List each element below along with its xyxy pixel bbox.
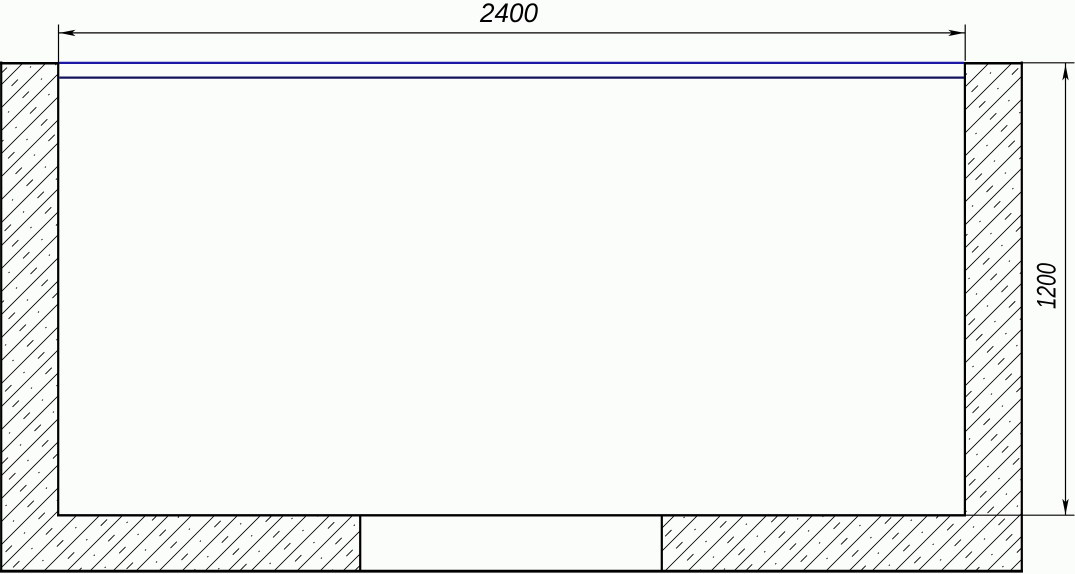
svg-text:2400: 2400 [479, 0, 538, 28]
svg-text:1200: 1200 [1032, 263, 1062, 309]
